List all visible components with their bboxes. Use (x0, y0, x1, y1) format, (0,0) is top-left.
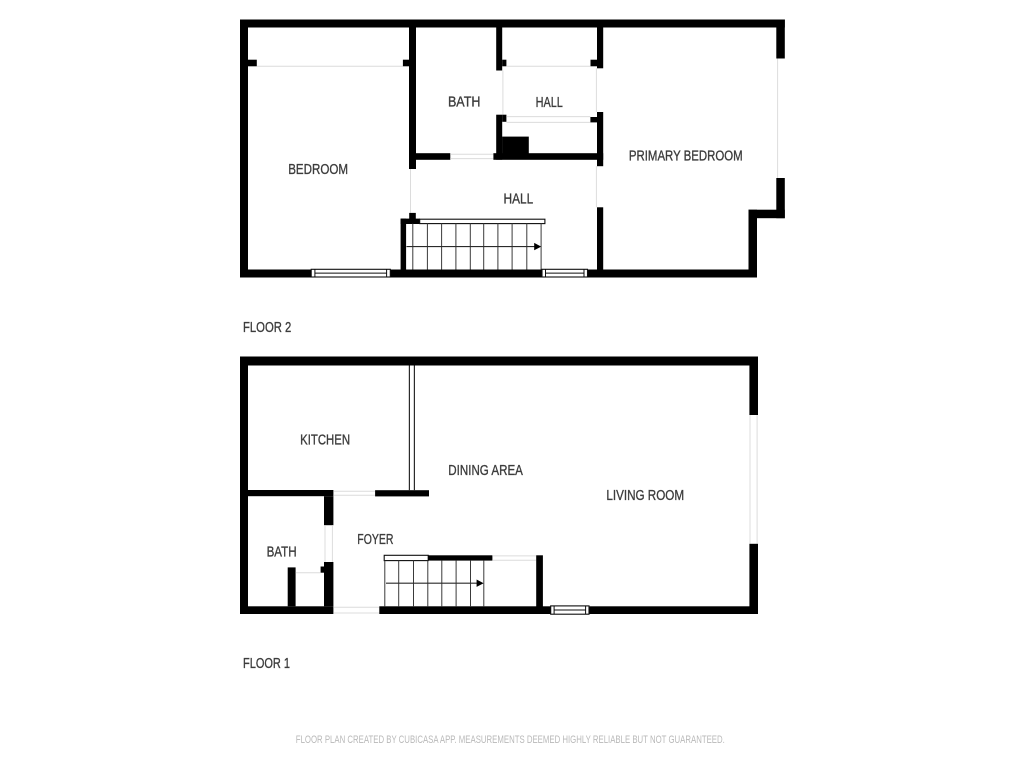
svg-text:PRIMARY BEDROOM: PRIMARY BEDROOM (629, 148, 743, 165)
svg-text:FOYER: FOYER (357, 531, 393, 548)
svg-text:BATH: BATH (448, 94, 481, 111)
svg-text:LIVING ROOM: LIVING ROOM (606, 487, 684, 504)
svg-text:HALL: HALL (536, 94, 563, 111)
svg-text:FLOOR 2: FLOOR 2 (243, 319, 291, 336)
svg-text:BEDROOM: BEDROOM (288, 161, 348, 178)
svg-text:FLOOR PLAN CREATED BY CUBICASA: FLOOR PLAN CREATED BY CUBICASA APP. MEAS… (296, 734, 725, 746)
svg-text:DINING AREA: DINING AREA (448, 462, 523, 479)
svg-text:HALL: HALL (504, 190, 534, 207)
svg-text:FLOOR 1: FLOOR 1 (243, 655, 290, 672)
svg-text:BATH: BATH (267, 543, 297, 560)
svg-text:KITCHEN: KITCHEN (300, 432, 350, 449)
